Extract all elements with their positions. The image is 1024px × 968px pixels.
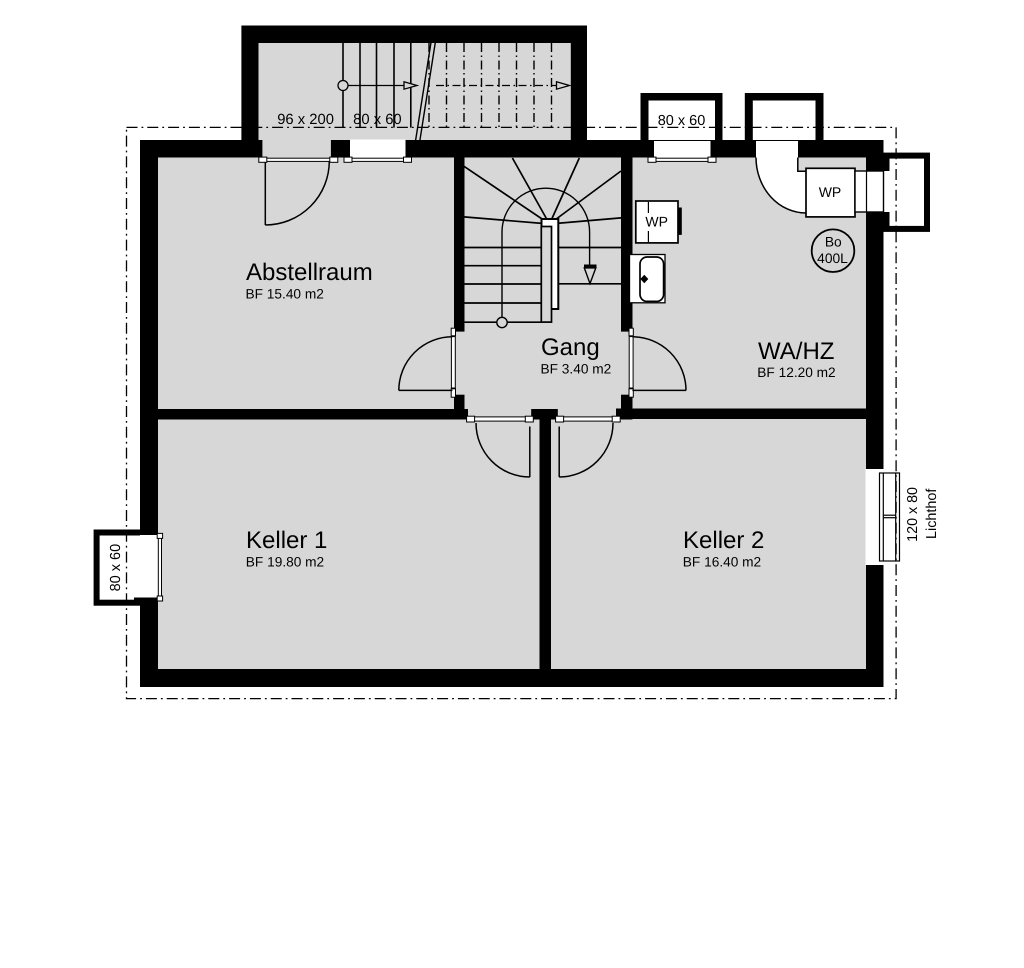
- svg-text:BF 15.40 m2: BF 15.40 m2: [246, 287, 324, 302]
- svg-text:WP: WP: [645, 214, 668, 230]
- svg-text:96 x 200: 96 x 200: [277, 112, 334, 128]
- svg-text:BF 3.40 m2: BF 3.40 m2: [541, 362, 612, 377]
- svg-text:Gang: Gang: [541, 334, 600, 361]
- svg-text:80 x 60: 80 x 60: [353, 112, 402, 128]
- svg-text:Keller 2: Keller 2: [683, 527, 764, 554]
- svg-text:BF 16.40 m2: BF 16.40 m2: [683, 554, 761, 569]
- svg-text:Abstellraum: Abstellraum: [246, 259, 373, 286]
- svg-text:120 x 80: 120 x 80: [905, 487, 921, 542]
- svg-text:Keller 1: Keller 1: [246, 527, 327, 554]
- svg-text:WP: WP: [819, 184, 842, 200]
- svg-text:400L: 400L: [817, 251, 848, 266]
- svg-text:80 x 60: 80 x 60: [108, 544, 124, 592]
- svg-text:Lichthof: Lichthof: [924, 488, 940, 539]
- svg-text:Bo: Bo: [825, 235, 842, 250]
- svg-text:BF 19.80 m2: BF 19.80 m2: [246, 554, 324, 569]
- svg-text:80 x 60: 80 x 60: [658, 113, 706, 129]
- svg-text:BF 12.20 m2: BF 12.20 m2: [757, 365, 835, 380]
- svg-text:WA/HZ: WA/HZ: [758, 338, 834, 365]
